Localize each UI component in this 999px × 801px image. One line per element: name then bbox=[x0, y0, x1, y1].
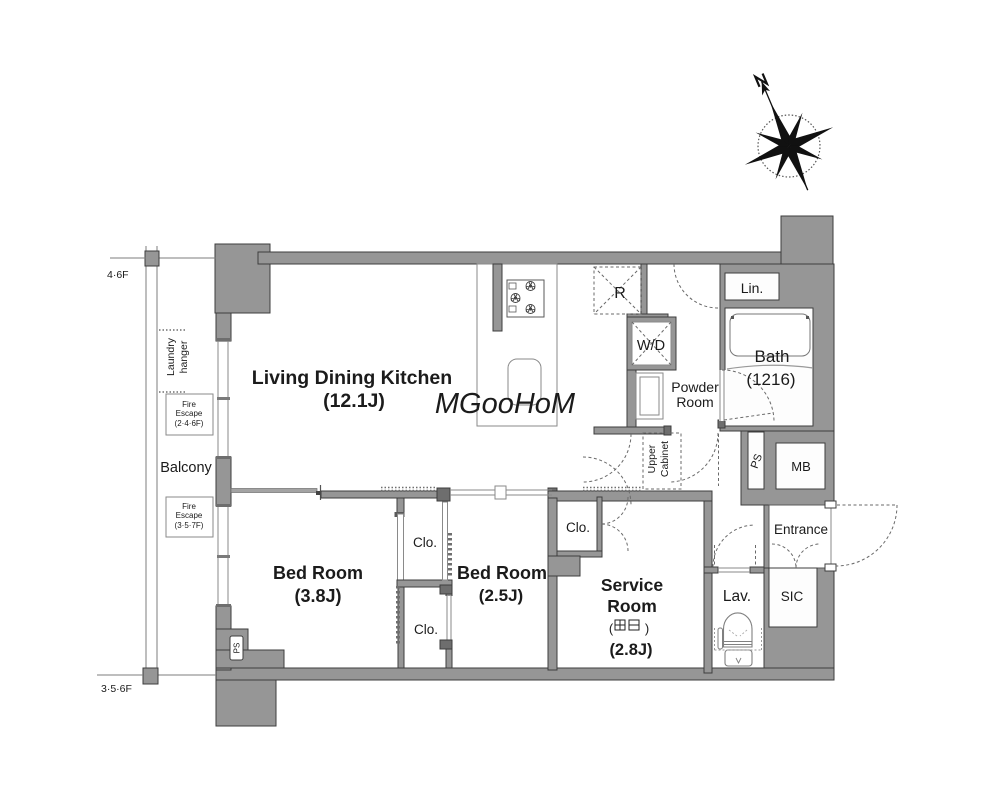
svg-text:hanger: hanger bbox=[178, 340, 190, 373]
svg-text:Bath: Bath bbox=[755, 347, 790, 366]
svg-text:Clo.: Clo. bbox=[413, 535, 437, 550]
svg-text:Entrance: Entrance bbox=[774, 522, 828, 537]
svg-text:Room: Room bbox=[607, 596, 657, 616]
svg-text:Cabinet: Cabinet bbox=[659, 441, 671, 477]
svg-text:3·5·6F: 3·5·6F bbox=[101, 683, 132, 695]
svg-text:Living Dining Kitchen: Living Dining Kitchen bbox=[252, 367, 452, 389]
svg-text:Lav.: Lav. bbox=[723, 588, 751, 605]
svg-text:PS: PS bbox=[233, 643, 242, 654]
svg-text:(12.1J): (12.1J) bbox=[323, 390, 385, 412]
svg-text:): ) bbox=[645, 621, 649, 636]
svg-text:Escape: Escape bbox=[176, 511, 203, 520]
svg-text:(2.5J): (2.5J) bbox=[479, 586, 523, 605]
svg-text:Bed Room: Bed Room bbox=[457, 563, 547, 583]
svg-text:Clo.: Clo. bbox=[414, 622, 438, 637]
svg-text:Balcony: Balcony bbox=[160, 460, 212, 476]
svg-text:Escape: Escape bbox=[176, 409, 203, 418]
svg-text:Clo.: Clo. bbox=[566, 520, 590, 535]
svg-text:(3·5·7F): (3·5·7F) bbox=[175, 521, 204, 530]
svg-text:Laundry: Laundry bbox=[165, 337, 177, 376]
svg-text:W/D: W/D bbox=[637, 338, 665, 354]
svg-text:Fire: Fire bbox=[182, 502, 196, 511]
svg-text:Powder: Powder bbox=[671, 379, 719, 395]
svg-text:Fire: Fire bbox=[182, 400, 196, 409]
svg-text:MB: MB bbox=[791, 459, 811, 474]
svg-text:(3.8J): (3.8J) bbox=[294, 586, 341, 606]
svg-text:Bed Room: Bed Room bbox=[273, 563, 363, 583]
svg-text:Service: Service bbox=[601, 575, 664, 595]
svg-text:(1216): (1216) bbox=[746, 370, 795, 389]
svg-text:SIC: SIC bbox=[781, 589, 804, 604]
svg-text:4·6F: 4·6F bbox=[107, 269, 129, 281]
svg-text:(2.8J): (2.8J) bbox=[609, 641, 652, 659]
svg-text:(: ( bbox=[609, 621, 614, 636]
svg-text:Room: Room bbox=[676, 394, 713, 410]
svg-text:MGooHoM: MGooHoM bbox=[435, 388, 576, 420]
svg-text:R: R bbox=[614, 285, 626, 302]
svg-text:Lin.: Lin. bbox=[741, 280, 764, 296]
svg-text:(2·4·6F): (2·4·6F) bbox=[175, 419, 204, 428]
svg-text:Upper: Upper bbox=[646, 444, 658, 473]
